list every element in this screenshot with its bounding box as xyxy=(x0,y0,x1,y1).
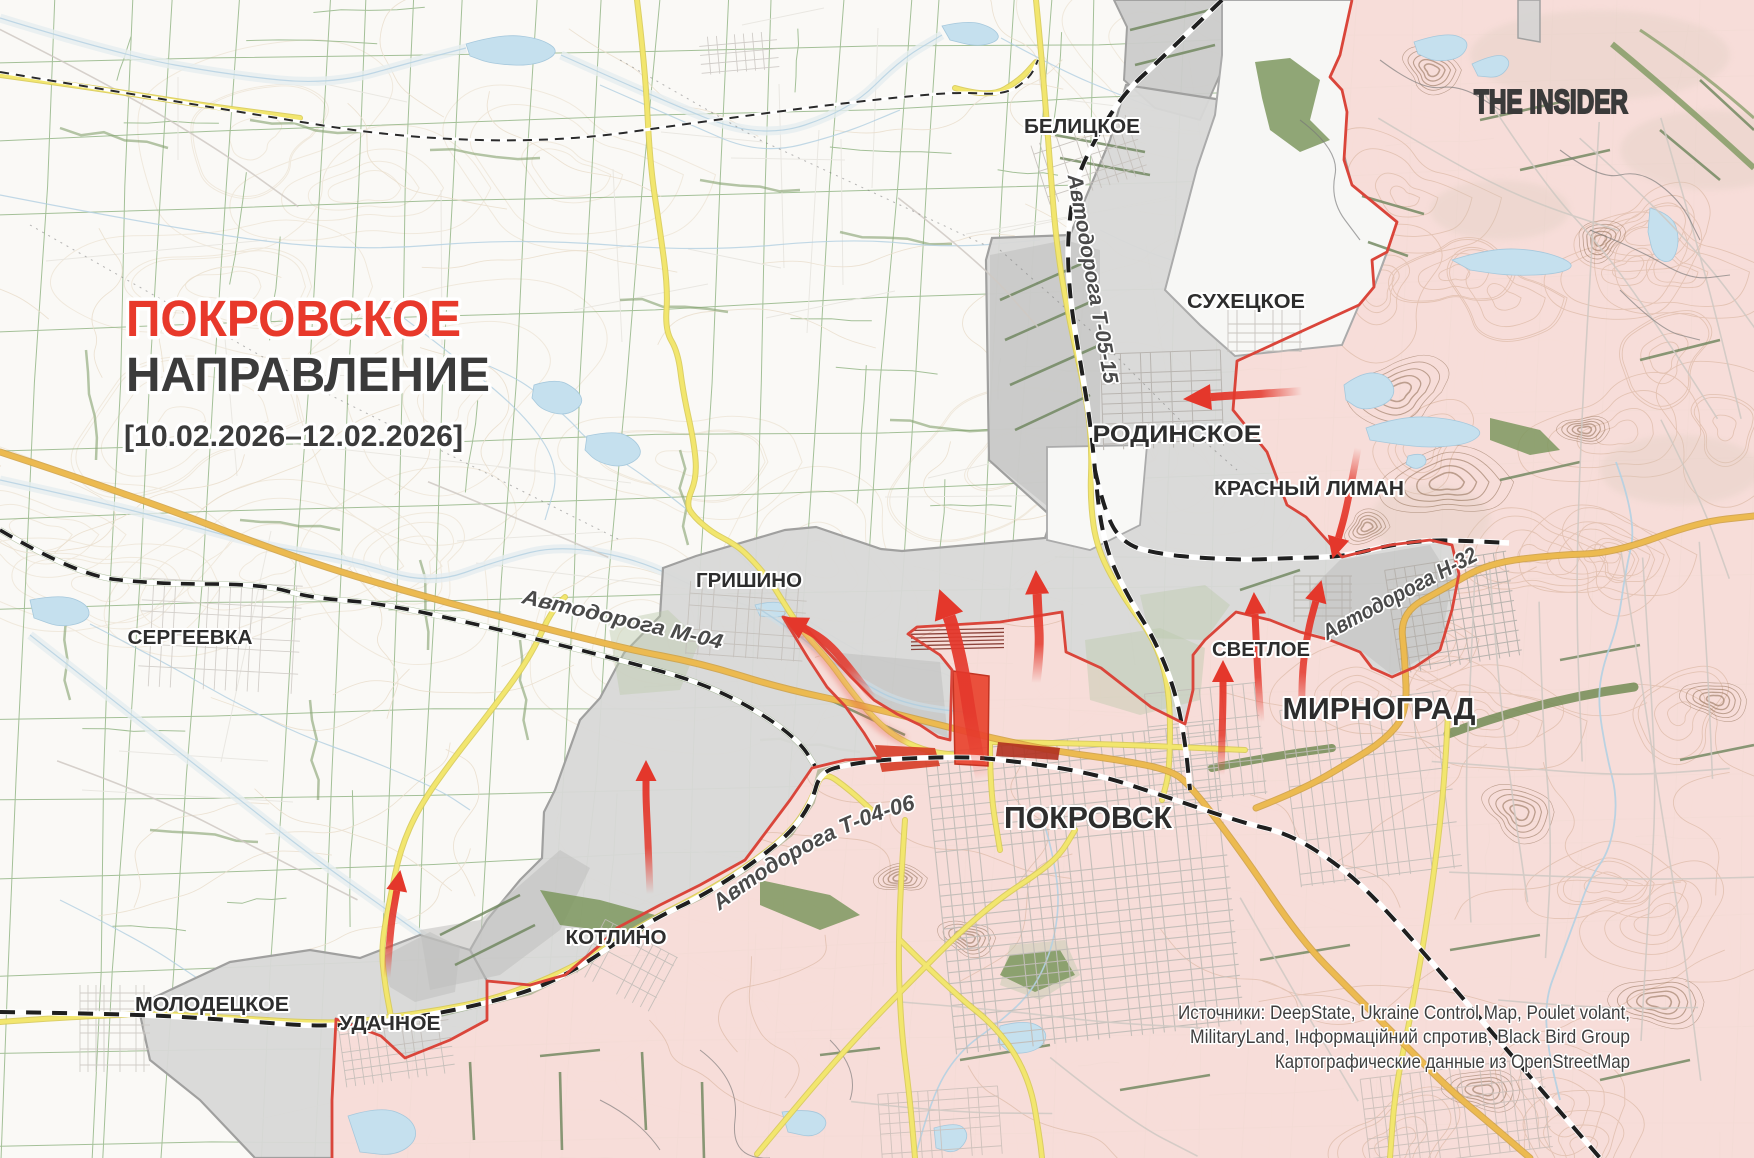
svg-text:Источники: DeepState, Ukraine: Источники: DeepState, Ukraine Control Ma… xyxy=(1178,1002,1630,1024)
svg-text:СЕРГЕЕВКА: СЕРГЕЕВКА xyxy=(128,627,253,649)
svg-text:КРАСНЫЙ ЛИМАН: КРАСНЫЙ ЛИМАН xyxy=(1214,476,1404,500)
svg-text:ГРИШИНО: ГРИШИНО xyxy=(696,570,802,592)
svg-text:THE INSIDER: THE INSIDER xyxy=(1474,83,1628,120)
svg-text:ПОКРОВСК: ПОКРОВСК xyxy=(1004,800,1172,835)
svg-text:СУХЕЦКОЕ: СУХЕЦКОЕ xyxy=(1187,291,1305,313)
svg-text:МИРНОГРАД: МИРНОГРАД xyxy=(1283,691,1476,726)
svg-text:ПОКРОВСКОЕ: ПОКРОВСКОЕ xyxy=(126,290,461,347)
svg-text:БЕЛИЦКОЕ: БЕЛИЦКОЕ xyxy=(1024,116,1140,138)
svg-text:СВЕТЛОЕ: СВЕТЛОЕ xyxy=(1212,639,1310,661)
svg-text:Картографические данные из Ope: Картографические данные из OpenStreetMap xyxy=(1275,1051,1630,1073)
svg-text:МОЛОДЕЦКОЕ: МОЛОДЕЦКОЕ xyxy=(135,994,289,1016)
svg-text:НАПРАВЛЕНИЕ: НАПРАВЛЕНИЕ xyxy=(126,349,490,402)
svg-text:РОДИНСКОЕ: РОДИНСКОЕ xyxy=(1093,421,1262,448)
svg-text:КОТЛИНО: КОТЛИНО xyxy=(566,927,667,949)
svg-text:MilitaryLand, Інформаційний сп: MilitaryLand, Інформаційний спротив, Bla… xyxy=(1190,1026,1630,1048)
svg-text:[10.02.2026–12.02.2026]: [10.02.2026–12.02.2026] xyxy=(124,420,463,453)
svg-text:УДАЧНОЕ: УДАЧНОЕ xyxy=(340,1013,441,1035)
